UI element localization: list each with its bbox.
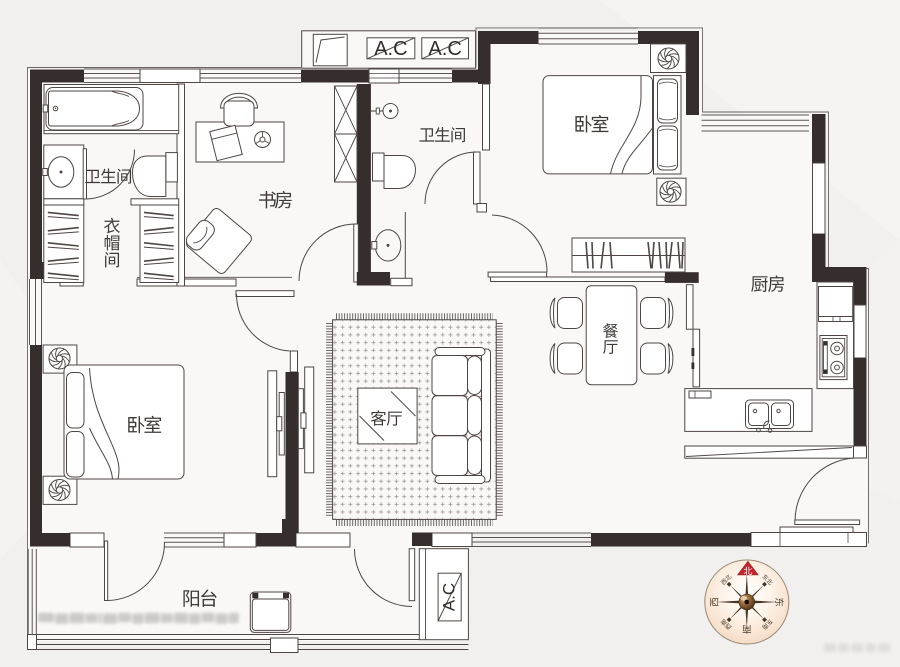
- svg-text:A.C: A.C: [374, 38, 407, 60]
- svg-text:A.C: A.C: [440, 583, 459, 611]
- svg-text:A.C: A.C: [428, 38, 461, 60]
